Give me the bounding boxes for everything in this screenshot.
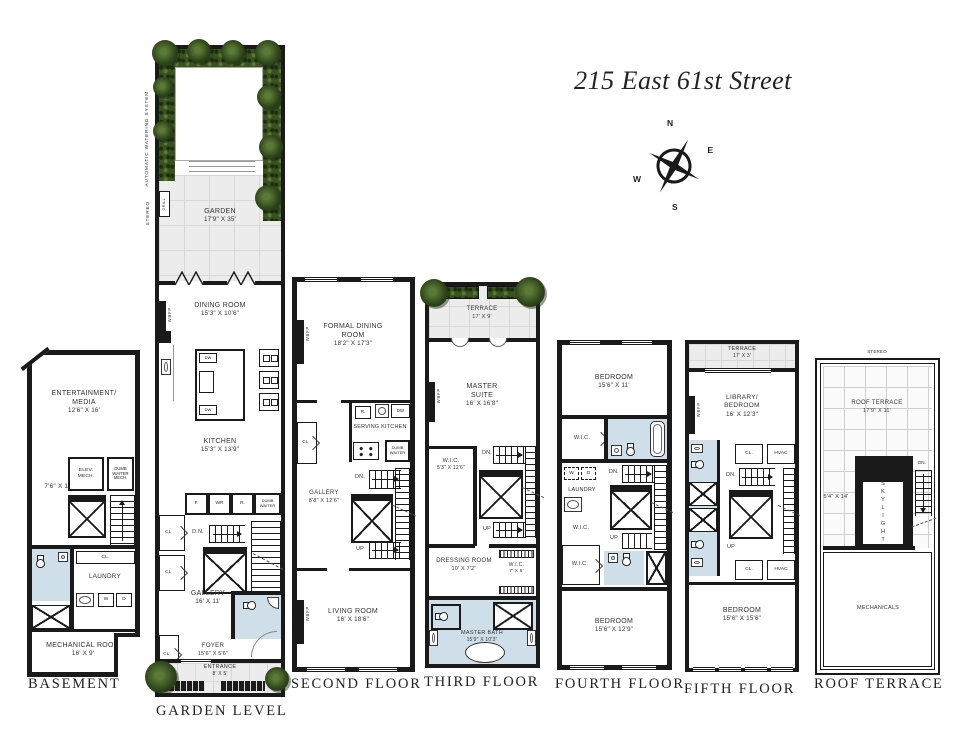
mechanicals-label: MECHANICALS	[838, 605, 918, 612]
grill: GRILL	[159, 191, 170, 217]
wall	[562, 587, 667, 591]
wall	[562, 459, 667, 463]
window-icon	[361, 277, 393, 282]
window-icon	[570, 665, 604, 670]
dn-label: D.N.	[187, 529, 209, 536]
stair-arrow-up-icon	[122, 501, 123, 541]
crawl-space-icon	[32, 605, 70, 629]
floor-label-fourth: FOURTH FLOOR	[555, 676, 685, 693]
wbfp-label: WBFP	[167, 307, 172, 322]
room-label-dressing: DRESSING ROOM 10' x 7'2"	[433, 558, 495, 573]
sink-icon	[527, 630, 536, 646]
wbfp-label: WBFP	[305, 606, 310, 621]
room-label-garden: GARDEN 17'9" x 35'	[179, 207, 261, 225]
room-label-bedroom5: BEDROOM 15'6" x 15'6"	[709, 606, 775, 624]
room-dims: 15'3" x 13'9"	[179, 446, 261, 455]
room-name: FOYER	[181, 643, 245, 651]
shower-icon	[493, 602, 533, 630]
plant-icon	[255, 40, 281, 66]
wbfp-label: WBFP	[436, 388, 441, 403]
wic-label: W.I.C.	[562, 525, 600, 532]
room-name: MASTER SUITE	[457, 382, 507, 400]
room-dims: 18'2" x 17'3"	[311, 340, 395, 349]
closet: CL.	[76, 551, 135, 564]
stereo-note: STEREO	[857, 349, 897, 355]
sink-icon	[58, 552, 68, 562]
floor-label-second: SECOND FLOOR	[291, 676, 422, 693]
wall	[429, 544, 475, 548]
room-dims: 8'8" x 12'6"	[299, 498, 349, 506]
toilet-icon	[626, 443, 635, 456]
room-name: BEDROOM	[709, 606, 775, 615]
room-label-terrace3: TERRACE 17' x 9'	[449, 306, 515, 321]
grill-label: GRILL	[162, 198, 166, 210]
floor-label-basement: BASEMENT	[28, 676, 121, 693]
room-dims: 17'9" x 35'	[179, 216, 261, 225]
plan-notch	[114, 633, 140, 677]
closet: CL.	[735, 444, 763, 464]
plant-icon	[153, 77, 173, 97]
garden-steps	[189, 161, 255, 175]
cooktop-icon	[259, 349, 279, 367]
plant-icon	[257, 85, 281, 109]
closet-door-icon	[174, 526, 188, 540]
hw-heater-icon	[159, 331, 171, 343]
compass-south-label: S	[672, 202, 678, 212]
dumbwaiter: DUMB WAITER	[254, 493, 281, 515]
plan-garden-level: AUTOMATIC WATERING SYSTEM STEREO GRILL G…	[155, 45, 285, 697]
closet-door-icon	[174, 566, 188, 580]
wall	[429, 596, 536, 600]
room-name: DINING ROOM	[179, 301, 261, 310]
wall	[297, 400, 317, 403]
dishwasher-icon: DW	[391, 404, 410, 418]
kitchen-sink-icon	[161, 359, 171, 375]
plant-icon	[515, 277, 545, 307]
window-icon	[719, 667, 741, 672]
dishwasher-icon: DW	[199, 405, 217, 415]
room-name: BEDROOM	[578, 617, 650, 626]
burner	[271, 377, 278, 384]
closet: CL.	[735, 560, 763, 580]
window-icon	[622, 665, 656, 670]
serving-kitchen-label: SERVING KITCHEN	[351, 424, 409, 431]
room-dims: 5'3" x 12'6"	[431, 465, 471, 472]
room-dims: 17' x 9'	[449, 314, 515, 322]
room-name: ENTRANCE	[187, 664, 253, 671]
plant-icon	[221, 40, 245, 64]
washer-icon: W	[564, 467, 579, 480]
room-label-formal-dining: FORMAL DINING ROOM 18'2" x 17'3"	[311, 322, 395, 349]
closet: CL.	[159, 555, 185, 591]
window-icon	[570, 340, 600, 345]
room-label-terrace5: TERRACE 17' x 3'	[709, 346, 775, 360]
closet: CL.	[297, 422, 317, 464]
compass-north-label: N	[667, 118, 673, 128]
stair-arrow-down-icon	[923, 474, 924, 512]
oven-icon	[199, 371, 214, 393]
room-dims: 12'6" x 16'	[40, 407, 128, 416]
sink-icon	[691, 444, 703, 453]
fireplace	[689, 396, 695, 434]
laundry-sink-icon	[564, 497, 582, 512]
plant-icon	[187, 39, 211, 63]
room-dims: 16' x 18'6"	[311, 616, 395, 625]
dn-label: DN.	[606, 469, 622, 476]
skylight: SKYLIGHT	[863, 482, 903, 544]
elevator-icon	[479, 475, 523, 519]
cooktop-icon	[353, 442, 379, 460]
bathtub-icon	[465, 642, 505, 663]
dumbwaiter: DUMB WAITER	[385, 440, 410, 462]
wall	[70, 549, 74, 629]
room-name: LIVING ROOM	[311, 607, 395, 616]
wall	[473, 446, 477, 546]
up-label: UP	[351, 546, 369, 553]
up-label: UP	[606, 535, 622, 542]
fireplace	[297, 600, 304, 644]
laundry-label: LAUNDRY	[562, 487, 602, 494]
wine-fridge-icon: WR	[208, 493, 231, 515]
wall	[32, 629, 135, 632]
room-label-master-suite: MASTER SUITE 16' x 16'8"	[457, 382, 507, 409]
toilet-room	[431, 604, 461, 630]
room-dims: 15'6" x 12'9"	[578, 626, 650, 635]
stair-run	[622, 533, 652, 549]
planter-box	[445, 286, 479, 299]
room-label-foyer: FOYER 15'6" x 5'6"	[181, 643, 245, 658]
wall	[429, 446, 477, 449]
elevator-icon	[610, 490, 652, 530]
plant-icon	[145, 661, 177, 693]
room-dims: 15'6" x 15'6"	[709, 615, 775, 624]
folding-door-icon	[227, 271, 255, 285]
wall	[349, 400, 352, 462]
floorplan-sheet: 215 East 61st Street N E W S ENTERTAINME…	[0, 0, 953, 736]
stair-arrow-icon	[496, 530, 522, 531]
wall	[429, 338, 536, 342]
door-arc-icon	[489, 338, 507, 347]
doormat	[221, 681, 265, 691]
fridge-icon: F.	[185, 493, 208, 515]
side-dims-label: 5'4" x 14'	[817, 494, 855, 501]
sink-icon	[608, 553, 618, 563]
room-label-roof-terrace: ROOF TERRACE 17'9" x 11'	[833, 400, 921, 415]
wall	[349, 568, 410, 571]
room-name: TERRACE	[449, 306, 515, 314]
floor-label-garden: GARDEN LEVEL	[156, 703, 288, 720]
room-name: ROOF TERRACE	[833, 400, 921, 408]
wall	[297, 568, 327, 571]
dryer-icon: D	[116, 593, 132, 607]
plant-icon	[152, 40, 178, 66]
window-icon	[622, 340, 652, 345]
room-label-entrance: ENTRANCE 8' x 5'	[187, 664, 253, 678]
mechanicals-room: MECHANICALS	[823, 552, 932, 667]
watering-system-note: AUTOMATIC WATERING SYSTEM	[145, 91, 150, 187]
window-icon	[693, 667, 715, 672]
floor-label-roof: ROOF TERRACE	[814, 676, 944, 693]
stair-arrow-icon	[625, 474, 651, 475]
plan-roof-terrace: STEREO ROOF TERRACE 17'9" x 11' SKYLIGHT…	[815, 358, 940, 675]
dn-label: DN.	[911, 460, 933, 466]
room-label-bedroom-front: BEDROOM 15'6" x 11'	[578, 373, 650, 391]
room-dims: 15'6" x 5'6"	[181, 651, 245, 659]
room-dims: 10' x 7'2"	[433, 566, 495, 574]
page-title: 215 East 61st Street	[548, 66, 818, 96]
room-name: LIBRARY/ BEDROOM	[713, 394, 771, 411]
room-label-wic-b: W.I.C. 7' x 6'	[499, 562, 534, 575]
floor-label-fifth: FIFTH FLOOR	[684, 681, 795, 698]
shower-icon	[689, 508, 717, 532]
room-dims: 15'6" x 11'	[578, 382, 650, 391]
dumbwaiter-mech-room: DUMB WAITER MECH.	[107, 457, 134, 491]
shower-icon	[689, 482, 717, 506]
sink-icon	[611, 445, 622, 456]
burner	[271, 355, 278, 362]
closet-rail	[499, 550, 534, 558]
sink-icon	[375, 404, 389, 418]
room-dims: 7' x 6'	[499, 569, 534, 576]
wbfp-label: WBFP	[305, 326, 310, 341]
up-label: UP	[723, 544, 739, 551]
washer-icon: W	[98, 593, 114, 607]
wall	[203, 281, 227, 285]
elevator-icon	[729, 495, 773, 539]
oven-icon	[259, 371, 279, 389]
plant-icon	[420, 279, 448, 307]
plant-icon	[259, 135, 283, 159]
wall	[717, 440, 720, 576]
skylight-label: SKYLIGHT	[880, 481, 886, 545]
room-name: FORMAL DINING ROOM	[311, 322, 395, 340]
room-name: BEDROOM	[578, 373, 650, 382]
room-name: W.I.C.	[431, 458, 471, 465]
plan-basement: ENTERTAINMENT/ MEDIA 12'6" x 16' 7'6" x …	[27, 350, 140, 677]
laundry-label: LAUNDRY	[76, 573, 134, 581]
burner	[271, 399, 278, 406]
room-label-bedroom-rear: BEDROOM 15'6" x 12'9"	[578, 617, 650, 635]
hvac-closet: HVAC	[767, 560, 795, 580]
room-name: MASTER BATH	[453, 630, 511, 637]
dn-label: DN.	[723, 472, 739, 479]
room-dims: 17'9" x 11'	[833, 408, 921, 416]
range-icon: R.	[355, 406, 371, 419]
room-label-dining: DINING ROOM 15'3" x 10'6"	[179, 301, 261, 319]
plan-second-floor: FORMAL DINING ROOM 18'2" x 17'3" WBFP R.…	[292, 277, 415, 672]
oven-icon	[259, 393, 279, 411]
sink-icon	[429, 630, 438, 646]
room-label-kitchen: KITCHEN 15'3" x 13'9"	[179, 437, 261, 455]
plant-icon	[265, 667, 289, 691]
plan-third-floor: TERRACE 17' x 9' MASTER SUITE 16' x 16'8…	[425, 282, 540, 668]
burner	[263, 377, 270, 384]
range-icon: R.	[231, 493, 254, 515]
elevator-mech-room: ELEV. MECH.	[68, 457, 104, 491]
toilet-icon	[691, 460, 704, 469]
plan-fourth-floor: BEDROOM 15'6" x 11' W.I.C. W D LAUNDRY W…	[557, 340, 672, 670]
window-icon	[305, 277, 337, 282]
window-icon	[771, 667, 793, 672]
compass-east-label: E	[707, 145, 713, 155]
wall	[159, 281, 175, 285]
toilet-icon	[435, 612, 448, 621]
toilet-icon	[243, 601, 256, 610]
wall	[489, 544, 536, 548]
folding-door-icon	[175, 271, 203, 285]
burner	[263, 399, 270, 406]
toilet-icon	[36, 555, 45, 568]
stair-arrow-icon	[213, 534, 241, 535]
room-dims: 15'3" x 10'6"	[179, 310, 261, 319]
closet-rail	[499, 586, 534, 594]
hvac-closet: HVAC	[767, 444, 795, 464]
window-icon	[705, 368, 771, 373]
burner	[263, 355, 270, 362]
wall	[823, 546, 915, 550]
room-label-entertainment: ENTERTAINMENT/ MEDIA 12'6" x 16'	[40, 389, 128, 416]
window-icon	[745, 667, 767, 672]
elevator-icon	[351, 499, 393, 543]
stereo-note: STEREO	[146, 201, 151, 226]
room-dims: 16' x 16'8"	[457, 400, 507, 409]
wbfp-label: WBFP	[696, 402, 701, 417]
room-dims: 16' x 12'3"	[713, 411, 771, 420]
sink-icon	[691, 558, 703, 567]
room-name: GARDEN	[179, 207, 261, 216]
shower-icon	[646, 551, 667, 585]
room-name: KITCHEN	[179, 437, 261, 446]
fireplace	[429, 382, 435, 422]
canted-wall	[11, 335, 49, 371]
dn-label: DN.	[351, 474, 369, 481]
closet-wic-a: W.I.C.	[562, 419, 604, 459]
compass-rose: N E W S	[632, 118, 716, 212]
room-name: GALLERY	[299, 490, 349, 498]
garden-deck	[175, 67, 263, 161]
wall	[689, 582, 795, 585]
fireplace	[297, 320, 304, 364]
wall	[255, 281, 281, 285]
stair-arrow-icon	[372, 550, 398, 551]
closet-wic-c: W.I.C.	[562, 545, 600, 585]
room-name: DRESSING ROOM	[433, 558, 495, 566]
room-name: ENTERTAINMENT/ MEDIA	[40, 389, 128, 407]
toilet-icon	[691, 540, 704, 549]
room-label-gallery2: GALLERY 8'8" x 12'6"	[299, 490, 349, 505]
plan-fifth-floor: TERRACE 17' x 3' LIBRARY/ BEDROOM 16' x …	[685, 340, 799, 672]
elevator-icon	[68, 500, 106, 538]
room-label-library: LIBRARY/ BEDROOM 16' x 12'3"	[713, 394, 771, 420]
compass-west-label: W	[633, 174, 641, 184]
compass-star-icon	[632, 118, 716, 212]
toilet-icon	[622, 553, 631, 566]
laundry-sink-icon	[76, 593, 94, 607]
door-arc-icon	[451, 338, 469, 347]
dryer-icon: D	[581, 467, 596, 480]
room-dims: 17' x 3'	[709, 353, 775, 360]
room-label-living: LIVING ROOM 16' x 18'6"	[311, 607, 395, 625]
room-label-wic-a: W.I.C. 5'3" x 12'6"	[431, 458, 471, 472]
bathtub-icon	[650, 421, 665, 457]
dishwasher-icon: DW	[199, 353, 217, 363]
window-icon	[359, 667, 397, 672]
closet: CL.	[159, 515, 185, 551]
floor-label-third: THIRD FLOOR	[424, 674, 539, 691]
window-icon	[307, 667, 345, 672]
plant-icon	[153, 121, 173, 141]
room-name: TERRACE	[709, 346, 775, 353]
stair-arrow-icon	[742, 477, 772, 478]
room-dims: 8' x 5'	[187, 671, 253, 678]
stair-arrow-icon	[496, 455, 522, 456]
elevator-icon	[203, 552, 247, 594]
